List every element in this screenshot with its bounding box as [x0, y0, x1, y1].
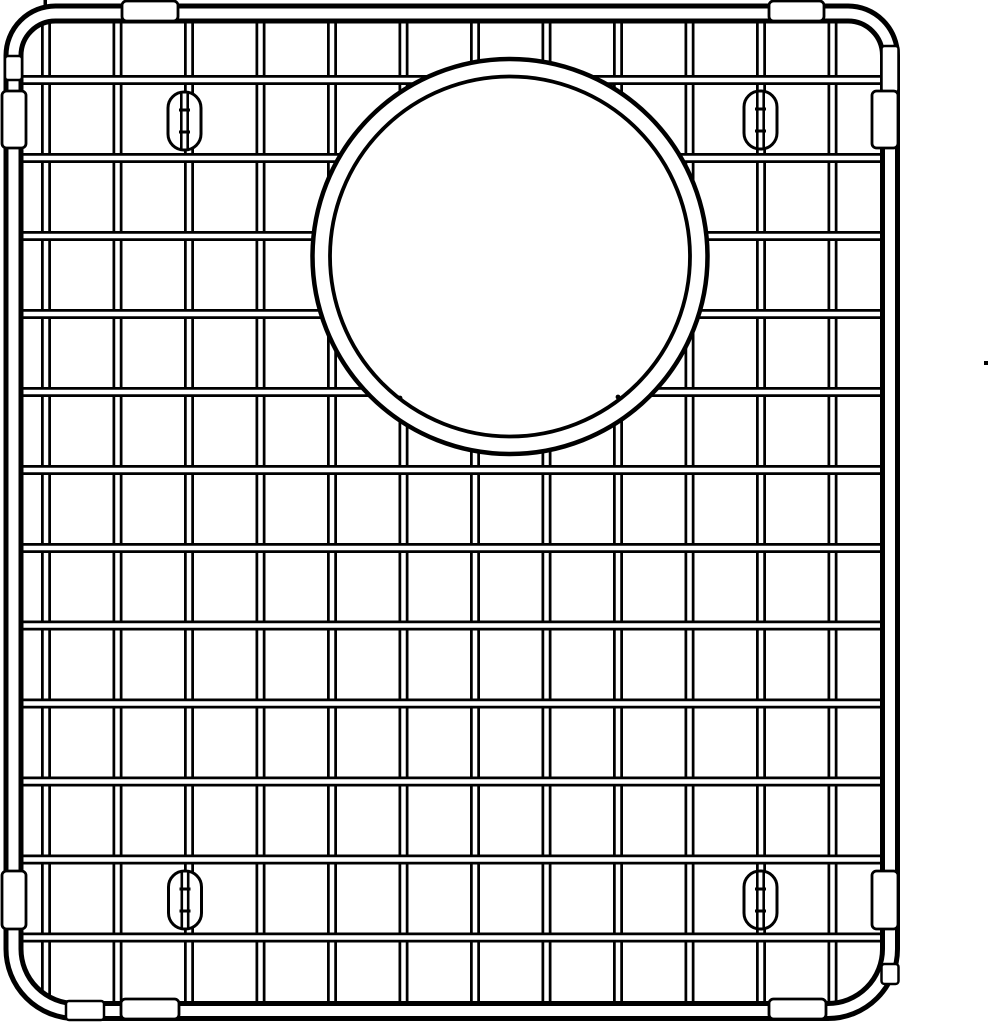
mounting-foot-top-right — [744, 91, 777, 149]
stray-ink-dot — [984, 361, 988, 365]
foot-clip-tick — [755, 130, 766, 133]
sink-grid-line-drawing — [0, 0, 991, 1024]
drain-opening-outer-ring — [313, 59, 708, 454]
frame-sleeve-top-right — [882, 46, 899, 92]
mounting-foot-top-left — [168, 92, 201, 150]
foot-clip-tick — [179, 131, 190, 134]
frame-bumper-bottom-right — [769, 999, 826, 1019]
mounting-foot-bottom-right — [744, 871, 777, 929]
frame-bumper-top-left — [122, 1, 178, 21]
frame-bumper-right-top — [872, 91, 898, 148]
foot-clip-tick — [180, 888, 191, 891]
frame-sleeve-bottom-right — [882, 964, 899, 984]
frame-weld-tick — [44, 0, 48, 7]
foot-clip-tick — [180, 910, 191, 913]
frame-bumper-left-top — [2, 91, 26, 148]
foot-clip-tick — [179, 109, 190, 112]
frame-sleeve-top-left — [5, 56, 22, 80]
frame-bumper-top-right — [769, 1, 824, 21]
drain-opening — [313, 59, 708, 454]
drain-ring-dot — [398, 396, 403, 401]
frame-bumper-left-bottom — [2, 871, 26, 929]
foot-clip-tick — [755, 108, 766, 111]
frame-bumper-right-bottom — [872, 871, 898, 929]
frame-sleeve-bottom-left — [66, 1001, 104, 1020]
mounting-foot-bottom-left — [169, 871, 202, 929]
frame-bumper-bottom-left — [121, 999, 179, 1019]
product-line-art — [0, 0, 991, 1024]
foot-clip-tick — [755, 888, 766, 891]
foot-clip-tick — [755, 910, 766, 913]
drain-ring-dot — [616, 395, 621, 400]
